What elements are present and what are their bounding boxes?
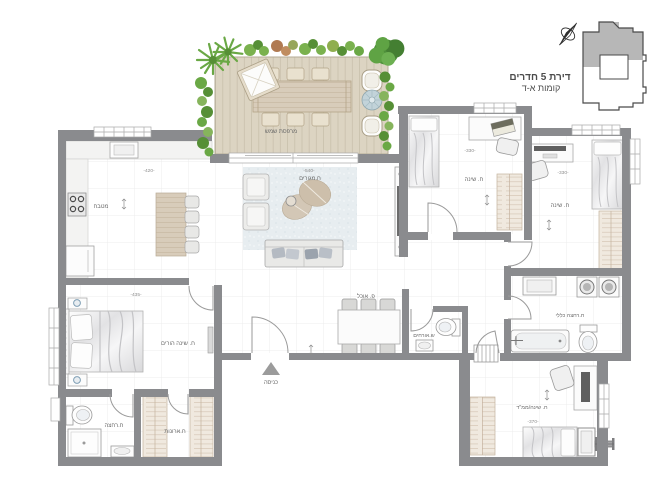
svg-text:דירת 5 חדרים: דירת 5 חדרים [509, 72, 570, 83]
svg-text:-330-: -330- [464, 148, 476, 154]
svg-text:ח. שינה: ח. שינה [465, 177, 484, 183]
svg-text:כניסה: כניסה [264, 380, 278, 386]
svg-text:ח. שינה/ממ"ד: ח. שינה/ממ"ד [516, 405, 548, 411]
svg-text:ח. שינה הורים: ח. שינה הורים [161, 341, 195, 347]
svg-text:מרפסת שמש: מרפסת שמש [265, 129, 297, 135]
svg-text:ש.אורחים: ש.אורחים [413, 333, 434, 339]
svg-text:פ. אוכל: פ. אוכל [357, 293, 375, 300]
svg-text:-370-: -370- [527, 419, 539, 425]
svg-text:-420-: -420- [143, 168, 155, 174]
svg-text:-435-: -435- [130, 292, 142, 298]
svg-text:ח. שינה: ח. שינה [551, 203, 570, 209]
svg-text:ח.ארונות: ח.ארונות [164, 429, 186, 435]
svg-text:ח.מגורים: ח.מגורים [299, 176, 321, 182]
svg-text:קומות א-ד: קומות א-ד [522, 83, 561, 93]
svg-text:-540-: -540- [303, 168, 315, 174]
svg-text:ח.רחצה כללי: ח.רחצה כללי [556, 312, 585, 319]
svg-text:ח.רחצה: ח.רחצה [105, 423, 124, 429]
svg-text:מטבח: מטבח [93, 204, 108, 210]
svg-text:-330-: -330- [557, 170, 569, 176]
